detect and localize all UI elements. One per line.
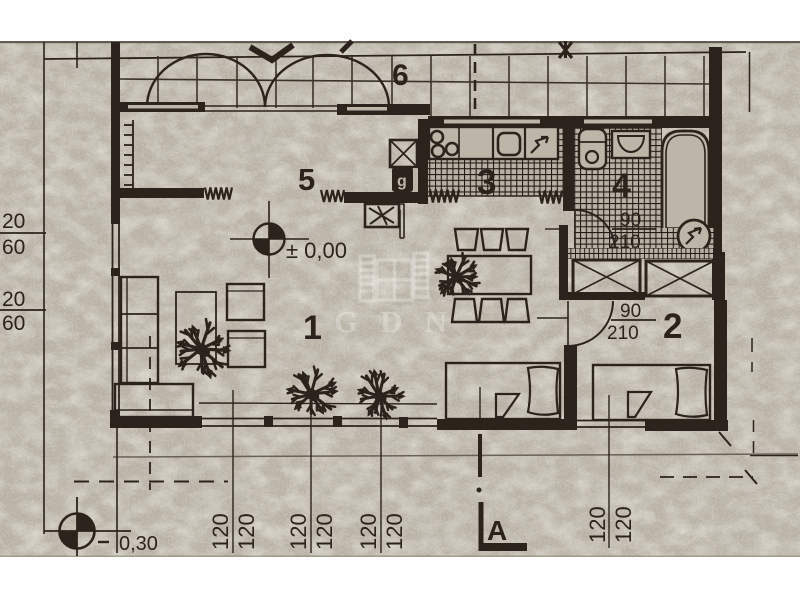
svg-text:5: 5 (298, 162, 315, 197)
svg-text:90: 90 (620, 210, 641, 231)
svg-text:60: 60 (2, 236, 25, 259)
svg-text:120: 120 (234, 513, 259, 550)
svg-text:3: 3 (477, 163, 496, 202)
svg-text:4: 4 (612, 167, 631, 205)
svg-text:GDN: GDN (334, 304, 469, 339)
svg-text:120: 120 (382, 513, 407, 550)
svg-text:120: 120 (585, 506, 610, 543)
svg-text:120: 120 (356, 513, 381, 550)
svg-text:120: 120 (312, 513, 337, 550)
svg-text:20: 20 (2, 288, 25, 311)
svg-text:20: 20 (2, 210, 25, 233)
svg-text:± 0,00: ± 0,00 (286, 238, 347, 263)
svg-text:210: 210 (607, 323, 639, 344)
svg-text:120: 120 (286, 513, 311, 550)
svg-text:2: 2 (663, 307, 682, 346)
svg-text:60: 60 (2, 312, 25, 335)
svg-text:90: 90 (620, 301, 641, 322)
svg-text:A: A (487, 515, 507, 546)
svg-text:0,30: 0,30 (119, 533, 158, 555)
svg-text:120: 120 (611, 506, 636, 543)
svg-text:g: g (397, 173, 407, 190)
svg-text:1: 1 (303, 309, 322, 347)
svg-text:120: 120 (208, 513, 233, 550)
svg-text:6: 6 (392, 59, 409, 92)
